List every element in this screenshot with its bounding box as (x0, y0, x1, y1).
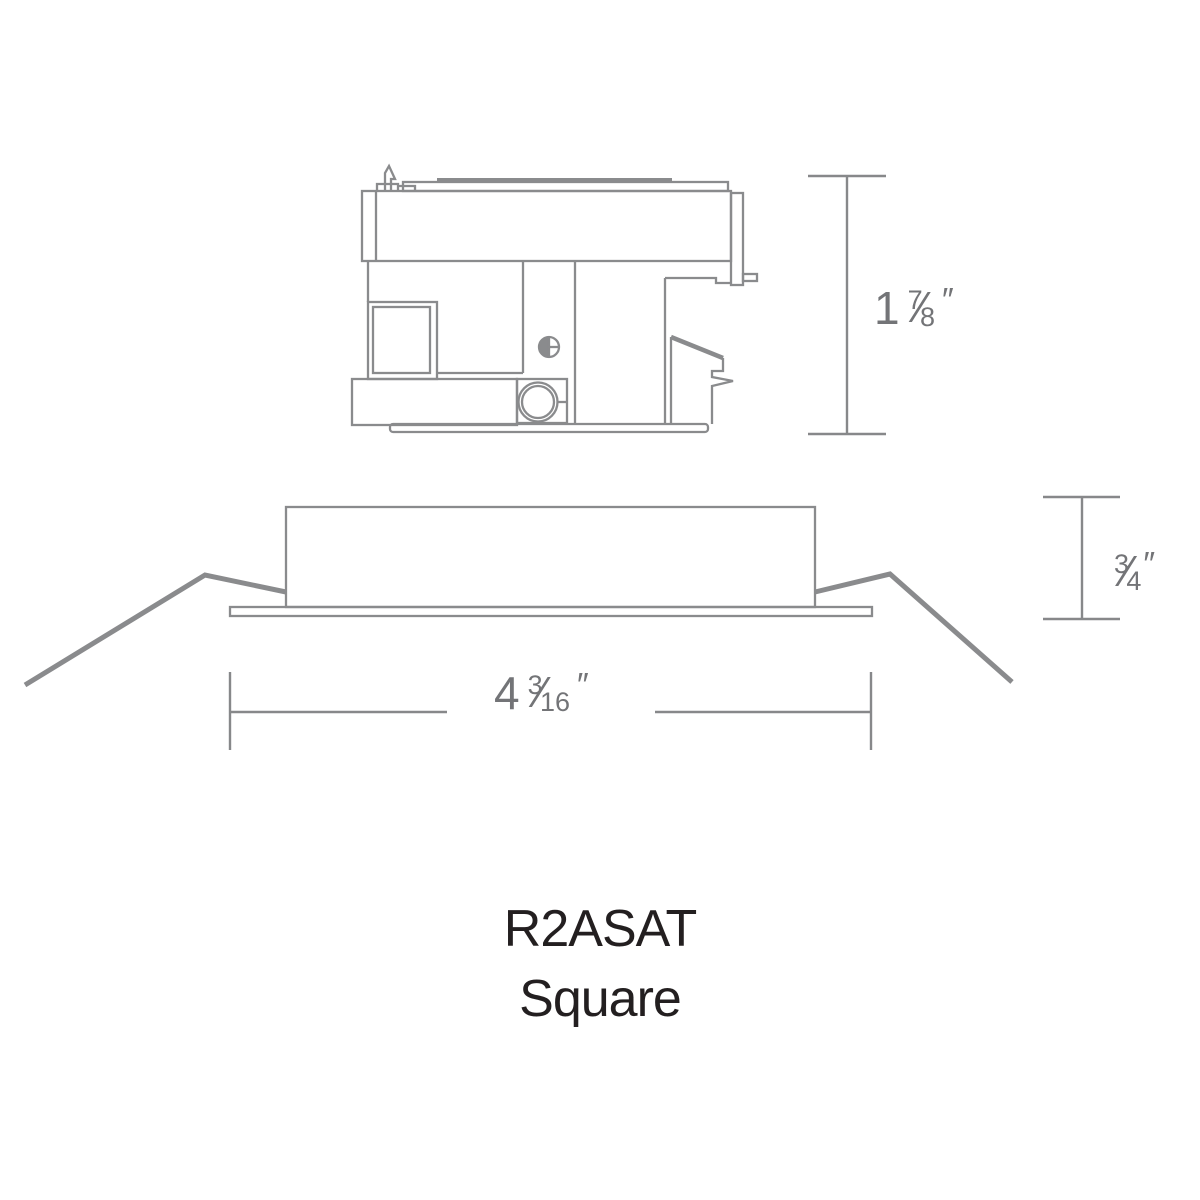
trim-flange (230, 607, 872, 616)
bracket-hook (712, 358, 733, 424)
trim-body-box (286, 507, 815, 607)
spec-sheet-page: 17⁄8″ 3⁄4″ 43⁄16″ R2ASAT Square (0, 0, 1200, 1200)
width-dimension-label: 43⁄16″ (494, 670, 589, 717)
lamp-circle-inner (522, 386, 554, 418)
width-unit: ″ (577, 668, 589, 701)
depth-dimension-line (1043, 497, 1120, 619)
height-denominator: 8 (920, 304, 935, 331)
height-whole: 1 (874, 285, 900, 331)
ceiling-line-right (815, 574, 1012, 682)
mounting-rail (403, 182, 728, 191)
depth-dimension-label: 3⁄4″ (1114, 552, 1155, 596)
height-dimension-label: 17⁄8″ (874, 285, 954, 332)
left-cutout-inner (373, 307, 430, 373)
product-shape: Square (0, 973, 1200, 1025)
screw-detail-icon (539, 337, 560, 358)
ceiling-line-left (25, 575, 286, 685)
junction-pin (743, 274, 757, 281)
depth-denominator: 4 (1126, 568, 1141, 595)
trim-profile-view (25, 507, 1012, 685)
bracket-diagonal (671, 337, 723, 358)
housing-right-rib (731, 193, 743, 285)
width-denominator: 16 (540, 689, 570, 716)
housing-side-view (352, 166, 757, 432)
lower-foot-box (352, 379, 517, 425)
depth-unit: ″ (1143, 547, 1155, 580)
left-cutout-outer (368, 302, 437, 379)
width-whole: 4 (494, 670, 520, 716)
mounting-clip-icon (385, 166, 395, 191)
height-unit: ″ (942, 283, 954, 316)
right-step-tab (665, 278, 731, 283)
housing-driver-box (362, 191, 731, 261)
lamp-circle-outer (519, 383, 558, 422)
product-code: R2ASAT (0, 903, 1200, 955)
